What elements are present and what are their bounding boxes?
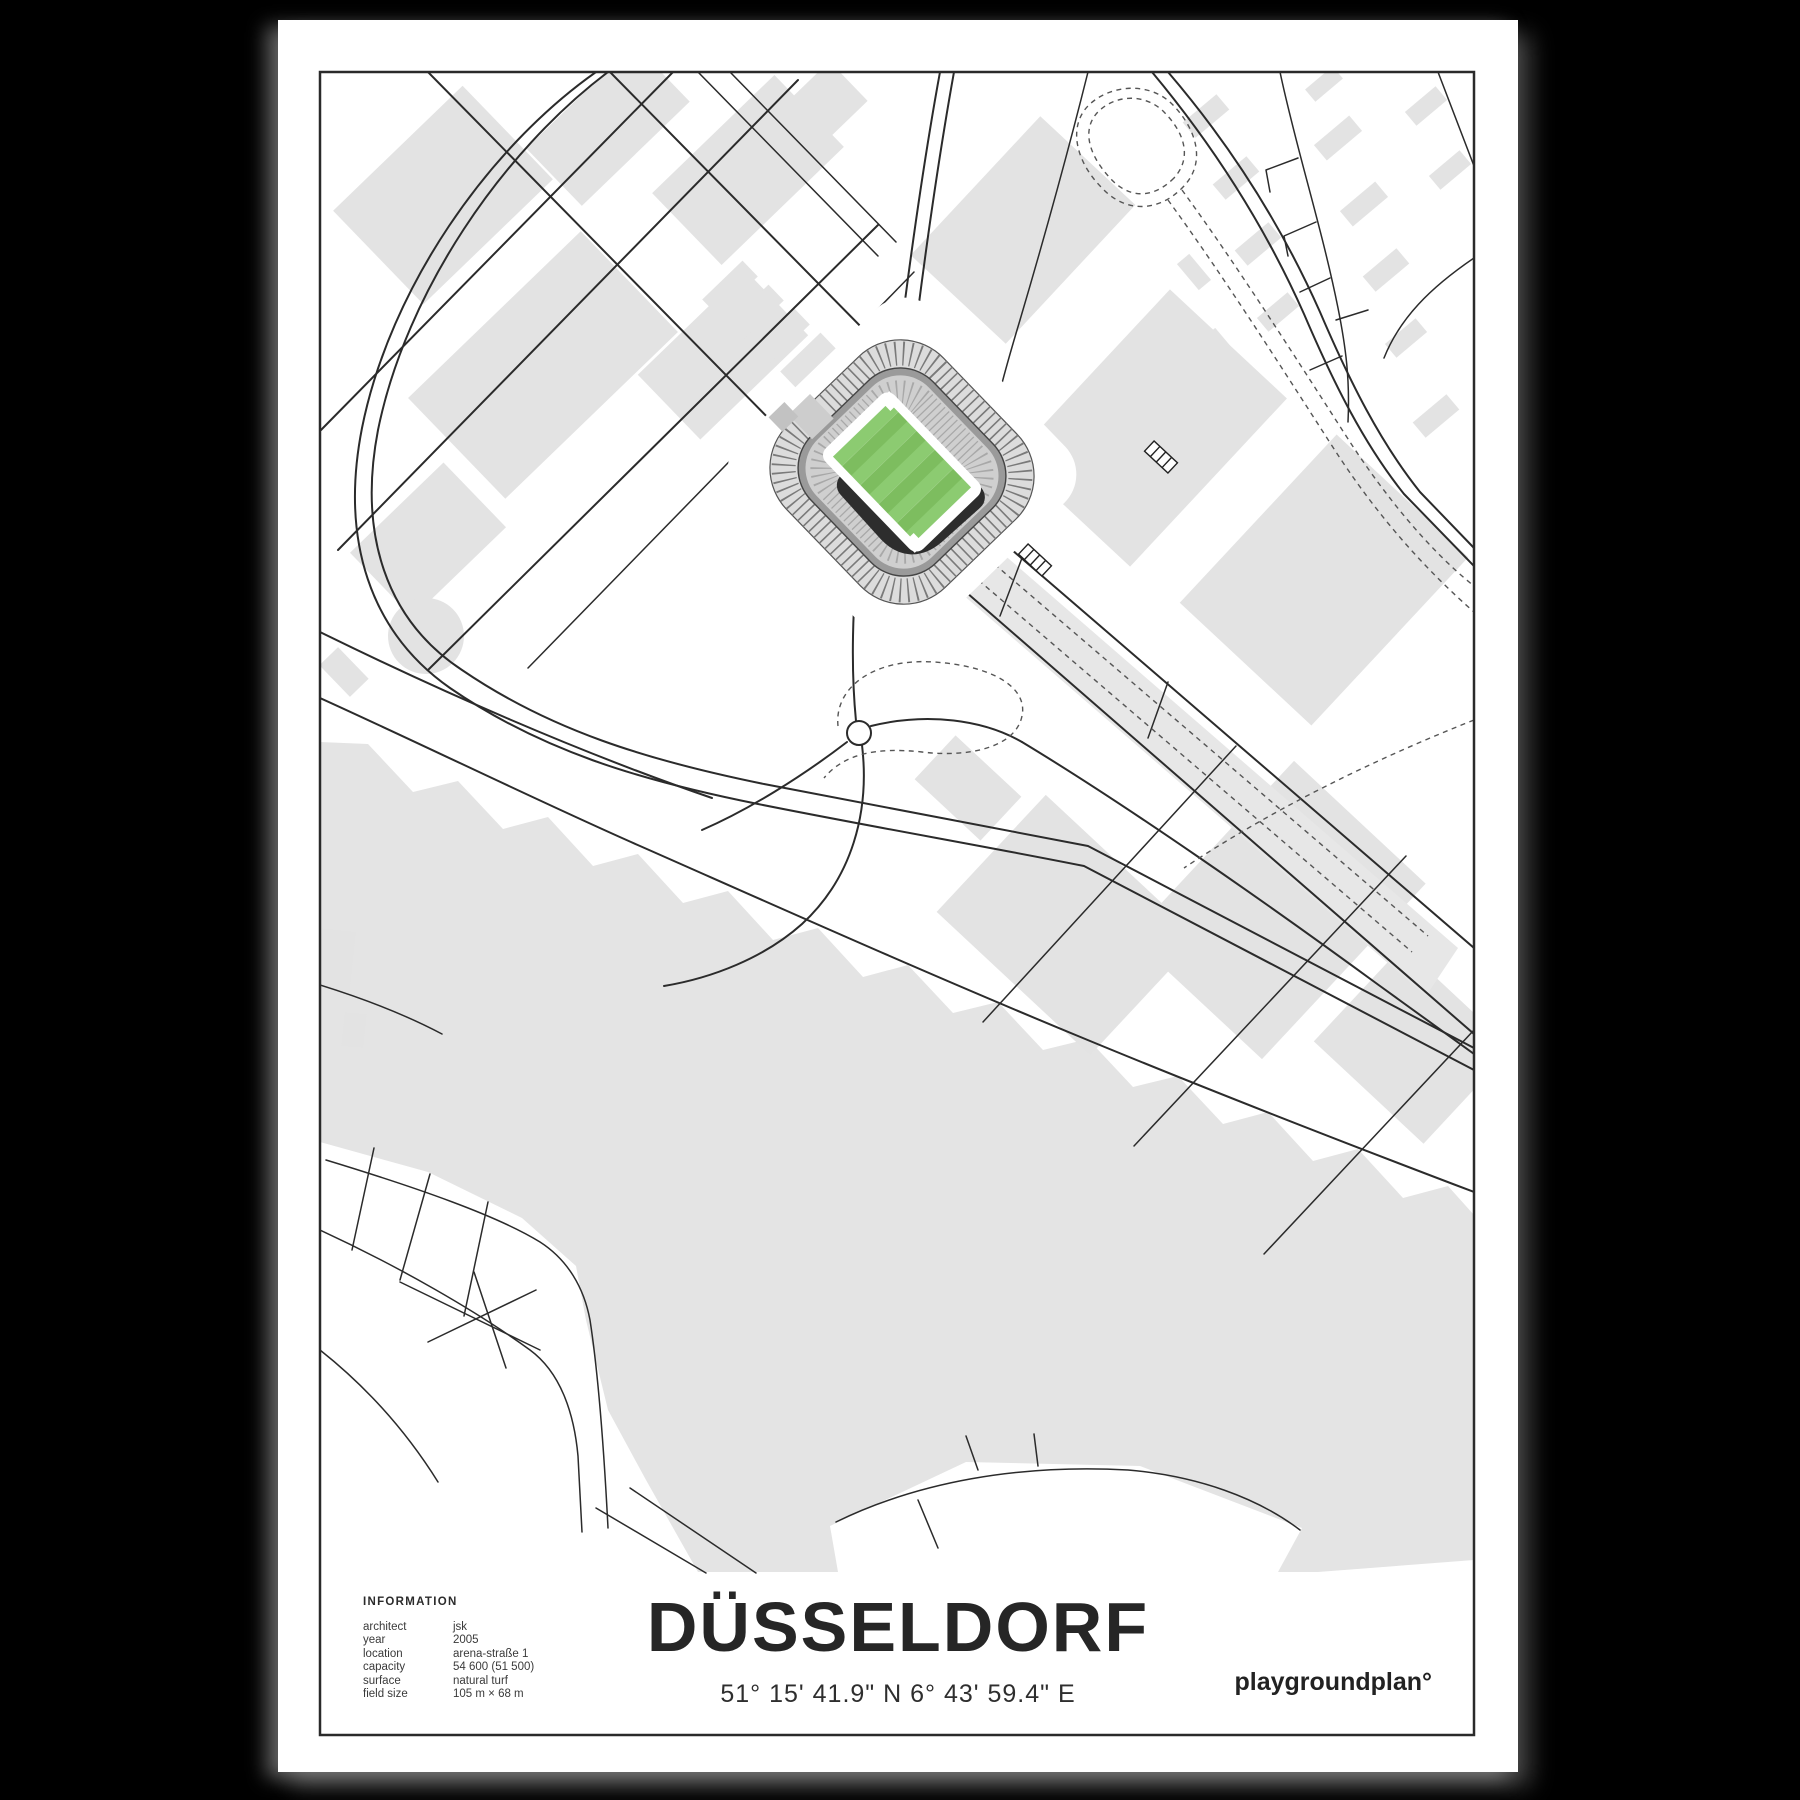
page-title: DÜSSELDORF [278,1592,1518,1662]
map-svg [278,20,1518,1772]
poster: INFORMATION architectjskyear2005location… [278,20,1518,1772]
brand-logo: playgroundplan° [1235,1668,1433,1697]
